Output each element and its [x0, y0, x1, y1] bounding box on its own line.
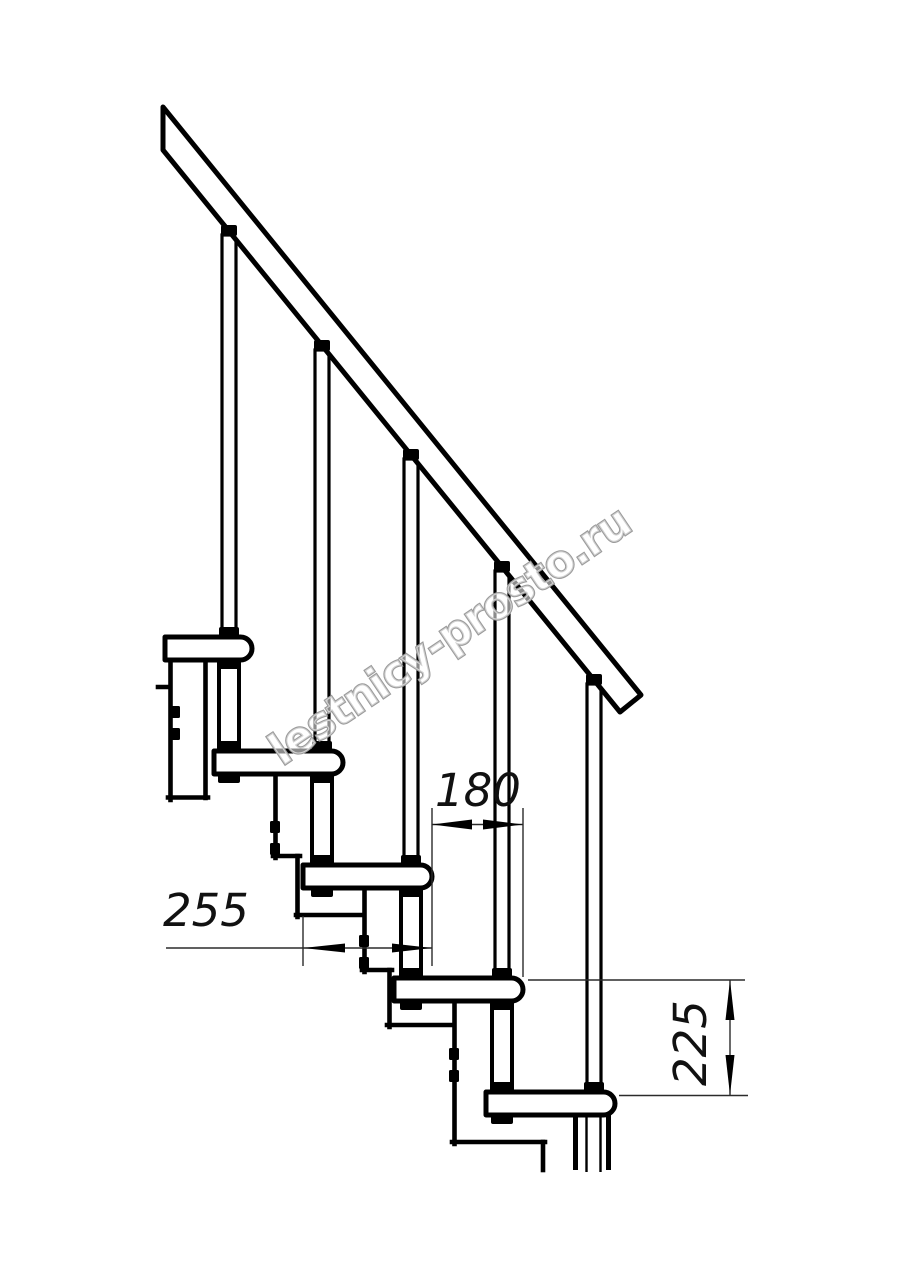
bracket-3-bolt-2: [359, 957, 369, 969]
support-column-1: [219, 656, 239, 751]
baluster-5-foot-collar: [584, 1082, 604, 1092]
baluster-5-tube: [587, 684, 601, 1092]
arrow-down-icon: [726, 1055, 735, 1095]
column-2-foot-collar: [310, 855, 334, 865]
staircase-drawing: 180 255 225 lestnicy-prosto.ru: [0, 0, 914, 1280]
baluster-3-cap: [403, 449, 419, 460]
dimension-going-label: 180: [435, 764, 521, 817]
column-1-top-flange: [218, 660, 240, 669]
baluster-3-foot-collar: [401, 855, 421, 865]
bracket-2-bolt-1: [270, 821, 280, 833]
bracket-4-bolt-1: [449, 1048, 459, 1060]
arrow-up-icon: [726, 980, 735, 1020]
bracket-1-bolt-1: [170, 706, 180, 718]
bracket-1: [158, 640, 208, 800]
tread-3: [303, 865, 432, 888]
column-1-foot-collar: [217, 741, 241, 751]
support-column-4: [492, 997, 512, 1092]
pass-nut-under-tread-5: [491, 1115, 513, 1124]
pass-nut-under-tread-4: [400, 1001, 422, 1010]
column-3-foot-collar: [399, 968, 423, 978]
tread-1: [165, 637, 252, 660]
tread-4: [394, 978, 523, 1001]
column-2-top-flange: [311, 774, 333, 783]
pass-nut-under-tread-2: [218, 774, 240, 783]
baluster-1-foot-collar: [219, 627, 239, 637]
dimension-depth-label: 255: [163, 884, 249, 937]
dimension-rise-label: 225: [664, 1000, 717, 1086]
baluster-5-cap: [586, 674, 602, 685]
column-4-foot-collar: [490, 1082, 514, 1092]
bracket-3-bolt-1: [359, 935, 369, 947]
support-column-3: [401, 884, 421, 978]
column-3-top-flange: [400, 888, 422, 897]
baluster-4-foot-collar: [492, 968, 512, 978]
bracket-2-bolt-2: [270, 843, 280, 855]
bracket-4-bolt-2: [449, 1070, 459, 1082]
baluster-1-cap: [221, 225, 237, 236]
dimension-rise: 225: [528, 980, 748, 1096]
arrow-left-icon: [303, 944, 345, 953]
pass-nut-under-tread-3: [311, 888, 333, 897]
baluster-2-cap: [314, 340, 330, 351]
bracket-1-bolt-2: [170, 728, 180, 740]
support-column-2: [312, 770, 332, 865]
arrow-left-icon: [432, 820, 472, 830]
column-4-top-flange: [491, 1001, 513, 1010]
baluster-1-tube: [222, 235, 236, 637]
technical-drawing-page: 180 255 225 lestnicy-prosto.ru: [0, 0, 914, 1280]
floor-post: [576, 1115, 609, 1172]
tread-5: [486, 1092, 615, 1115]
